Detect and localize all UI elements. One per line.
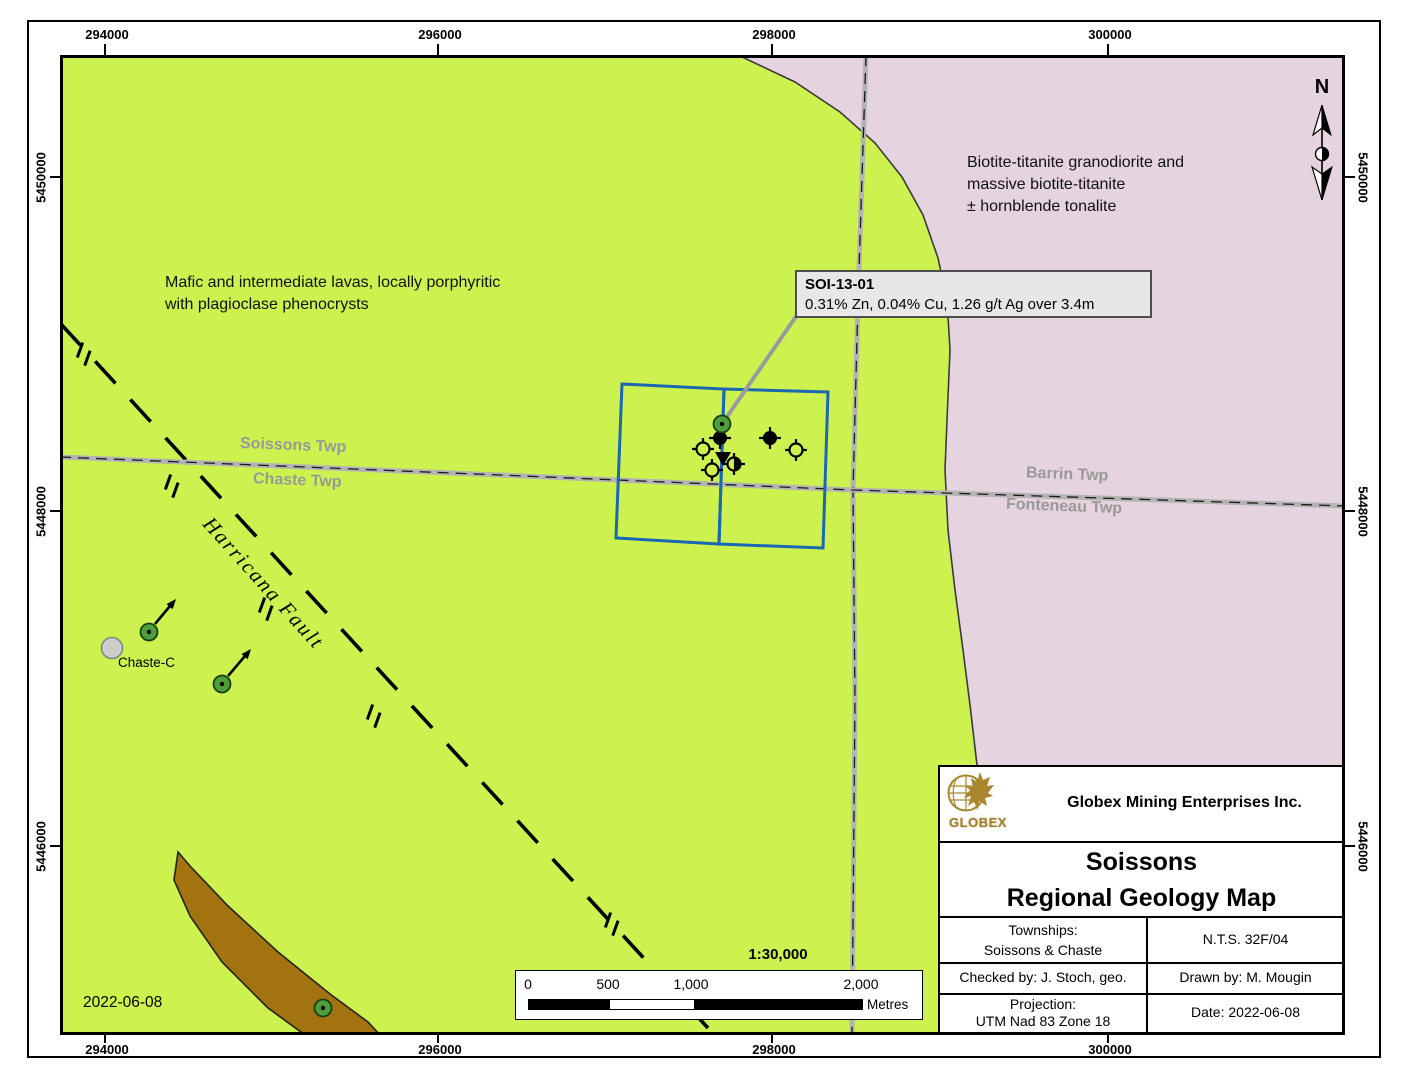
date-cell: Date: 2022-06-08 <box>1148 995 1343 1033</box>
map-title-line2: Regional Geology Map <box>940 880 1343 916</box>
grid-tick-top-1 <box>104 44 106 55</box>
scale-tick-1000: 1,000 <box>666 976 716 992</box>
unit-label-granodiorite-line3: ± hornblende tonalite <box>967 196 1184 218</box>
scale-bar-segment-white <box>610 1000 694 1009</box>
township-label-barrin: Barrin Twp <box>1026 464 1109 485</box>
scale-bar-segments <box>528 999 863 1010</box>
scale-unit-label: Metres <box>867 997 908 1012</box>
grid-tick-bottom-3 <box>771 1032 773 1043</box>
townships-cell-value: Soissons & Chaste <box>940 940 1146 960</box>
scale-bar-segment-black1 <box>529 1000 610 1009</box>
grid-label-left-3: 5446000 <box>34 815 49 879</box>
projection-cell-label: Projection: <box>940 996 1146 1013</box>
unit-label-granodiorite-line1: Biotite-titanite granodiorite and <box>967 152 1184 174</box>
scale-tick-0: 0 <box>518 976 538 992</box>
company-name: Globex Mining Enterprises Inc. <box>1030 767 1339 839</box>
globex-logo-text: GLOBEX <box>942 815 1014 830</box>
grid-label-right-2: 5448000 <box>1356 480 1371 544</box>
grid-label-top-4: 300000 <box>1078 27 1142 42</box>
grid-label-bottom-1: 294000 <box>75 1042 139 1057</box>
fault-line <box>60 323 708 1028</box>
north-arrow-label: N <box>1310 76 1334 99</box>
unit-label-granodiorite: Biotite-titanite granodiorite and massiv… <box>967 152 1184 218</box>
scale-tick-500: 500 <box>588 976 628 992</box>
title-block-projection-row: Projection: UTM Nad 83 Zone 18 Date: 202… <box>940 995 1343 1033</box>
unit-label-mafic-lavas: Mafic and intermediate lavas, locally po… <box>165 272 500 316</box>
grid-tick-bottom-1 <box>104 1032 106 1043</box>
scale-ratio-label: 1:30,000 <box>698 946 858 963</box>
townships-cell-label: Townships: <box>940 920 1146 940</box>
townships-cell: Townships: Soissons & Chaste <box>940 918 1148 962</box>
grid-tick-left-1 <box>50 176 60 178</box>
map-title-line1: Soissons <box>940 844 1343 880</box>
grid-label-right-3: 5446000 <box>1356 815 1371 879</box>
title-block-townships-row: Townships: Soissons & Chaste N.T.S. 32F/… <box>940 918 1343 964</box>
grid-tick-bottom-4 <box>1107 1032 1109 1043</box>
checked-by-cell: Checked by: J. Stoch, geo. <box>940 964 1148 993</box>
chaste-c-label: Chaste-C <box>118 655 175 670</box>
grid-tick-left-3 <box>50 845 60 847</box>
projection-cell: Projection: UTM Nad 83 Zone 18 <box>940 995 1148 1033</box>
map-date-note: 2022-06-08 <box>83 994 162 1012</box>
township-label-chaste: Chaste Twp <box>253 470 342 491</box>
unit-label-mafic-line2: with plagioclase phenocrysts <box>165 294 500 316</box>
grid-tick-bottom-2 <box>437 1032 439 1043</box>
grid-tick-top-2 <box>437 44 439 55</box>
callout-body: 0.31% Zn, 0.04% Cu, 1.26 g/t Ag over 3.4… <box>805 295 1142 315</box>
grid-tick-right-2 <box>1345 510 1355 512</box>
title-block-company-row: GLOBEX Globex Mining Enterprises Inc. <box>940 767 1343 843</box>
drill-hole-soi-13-01 <box>714 416 731 433</box>
title-block: GLOBEX Globex Mining Enterprises Inc. So… <box>938 765 1345 1035</box>
title-block-credits-row: Checked by: J. Stoch, geo. Drawn by: M. … <box>940 964 1343 995</box>
grid-label-top-3: 298000 <box>742 27 806 42</box>
fault-tick-symbols <box>77 343 618 936</box>
grid-label-top-2: 296000 <box>408 27 472 42</box>
nts-cell: N.T.S. 32F/04 <box>1148 918 1343 962</box>
grid-label-bottom-4: 300000 <box>1078 1042 1142 1057</box>
grid-label-right-1: 5450000 <box>1356 146 1371 210</box>
grid-label-bottom-3: 298000 <box>742 1042 806 1057</box>
globex-logo-icon <box>946 770 1002 816</box>
title-block-map-title: Soissons Regional Geology Map <box>940 843 1343 918</box>
grid-label-bottom-2: 296000 <box>408 1042 472 1057</box>
grid-tick-top-3 <box>771 44 773 55</box>
unit-label-mafic-line1: Mafic and intermediate lavas, locally po… <box>165 272 500 294</box>
claim-blocks <box>616 384 828 548</box>
callout-leader-line <box>722 315 797 424</box>
grid-label-left-1: 5450000 <box>34 146 49 210</box>
scale-bar: 0 500 1,000 2,000 Metres <box>515 970 923 1020</box>
grid-tick-left-2 <box>50 510 60 512</box>
grid-tick-right-1 <box>1345 176 1355 178</box>
drawn-by-cell: Drawn by: M. Mougin <box>1148 964 1343 993</box>
drill-result-callout: SOI-13-01 0.31% Zn, 0.04% Cu, 1.26 g/t A… <box>795 270 1152 318</box>
drill-hole-symbols <box>692 416 807 482</box>
unit-label-granodiorite-line2: massive biotite-titanite <box>967 174 1184 196</box>
grid-label-left-2: 5448000 <box>34 480 49 544</box>
callout-title: SOI-13-01 <box>805 274 1142 295</box>
geology-unit-intrusive <box>174 852 380 1035</box>
scale-tick-2000: 2,000 <box>836 976 886 992</box>
grid-tick-right-3 <box>1345 845 1355 847</box>
projection-cell-value: UTM Nad 83 Zone 18 <box>940 1013 1146 1030</box>
grid-label-top-1: 294000 <box>75 27 139 42</box>
grid-tick-top-4 <box>1107 44 1109 55</box>
township-boundary-ns <box>852 55 866 1035</box>
map-sheet: Mafic and intermediate lavas, locally po… <box>0 0 1408 1088</box>
scale-bar-segment-black2 <box>694 1000 862 1009</box>
